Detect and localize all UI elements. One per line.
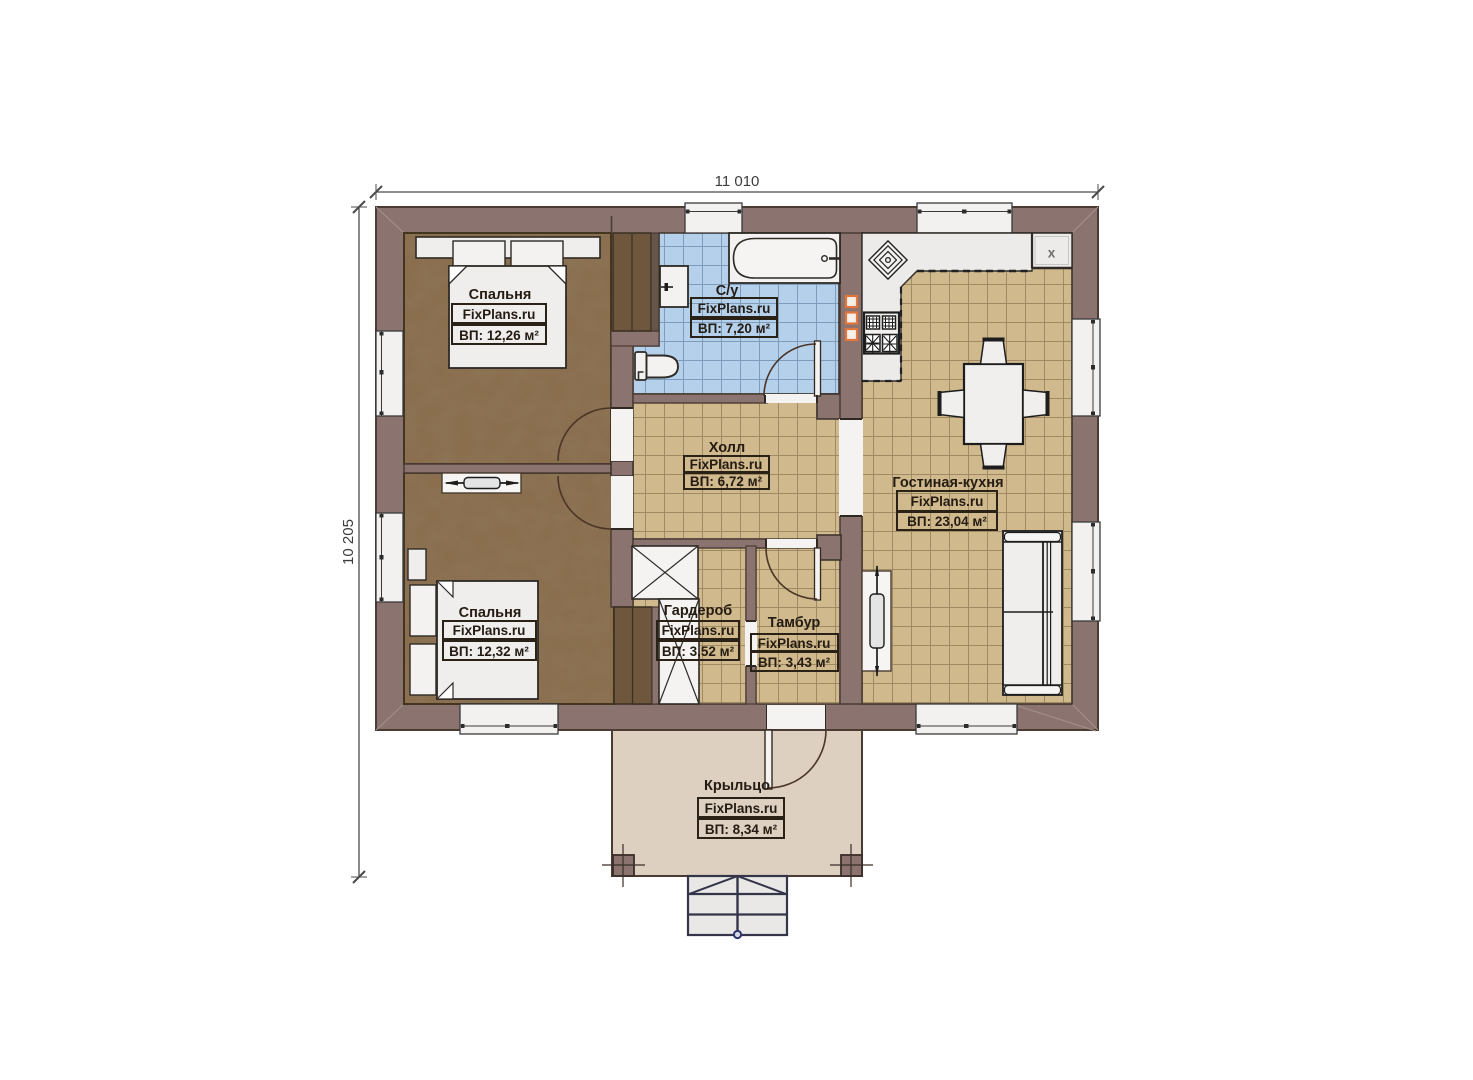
svg-text:FixPlans.ru: FixPlans.ru (758, 636, 831, 651)
svg-text:Холл: Холл (709, 440, 745, 456)
svg-text:Крыльцо: Крыльцо (704, 778, 770, 794)
svg-text:С/у: С/у (716, 283, 739, 299)
svg-text:FixPlans.ru: FixPlans.ru (705, 801, 778, 816)
svg-text:x: x (1048, 246, 1056, 261)
svg-text:ВП: 12,32 м²: ВП: 12,32 м² (449, 644, 529, 659)
svg-text:10 205: 10 205 (340, 519, 357, 565)
svg-text:FixPlans.ru: FixPlans.ru (911, 494, 984, 509)
svg-text:ВП: 8,34 м²: ВП: 8,34 м² (705, 822, 778, 837)
svg-text:11 010: 11 010 (715, 173, 760, 190)
svg-text:FixPlans.ru: FixPlans.ru (453, 623, 526, 638)
svg-text:Спальня: Спальня (459, 605, 522, 621)
svg-text:Тамбур: Тамбур (768, 615, 821, 631)
svg-text:FixPlans.ru: FixPlans.ru (690, 457, 763, 472)
svg-text:ВП: 3,52 м²: ВП: 3,52 м² (662, 644, 735, 659)
svg-text:FixPlans.ru: FixPlans.ru (463, 307, 536, 322)
svg-text:FixPlans.ru: FixPlans.ru (698, 301, 771, 316)
svg-text:ВП: 12,26 м²: ВП: 12,26 м² (459, 328, 539, 343)
svg-text:ВП: 6,72 м²: ВП: 6,72 м² (690, 474, 763, 489)
svg-text:ВП: 23,04 м²: ВП: 23,04 м² (907, 514, 987, 529)
svg-text:Гардероб: Гардероб (664, 603, 733, 619)
svg-text:ВП: 3,43 м²: ВП: 3,43 м² (758, 655, 831, 670)
svg-text:FixPlans.ru: FixPlans.ru (662, 623, 735, 638)
svg-text:ВП: 7,20 м²: ВП: 7,20 м² (698, 321, 771, 336)
svg-text:Спальня: Спальня (469, 287, 532, 303)
svg-text:Гостиная-кухня: Гостиная-кухня (892, 475, 1003, 491)
